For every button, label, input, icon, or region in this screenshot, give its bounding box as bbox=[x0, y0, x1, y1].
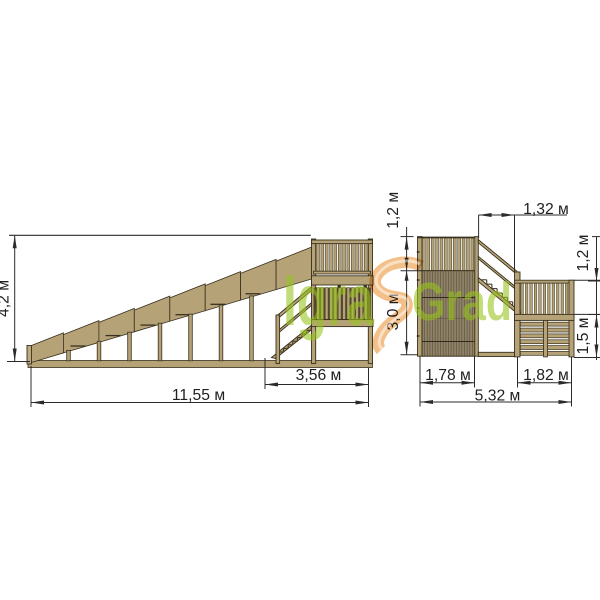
svg-text:Grad: Grad bbox=[412, 272, 512, 332]
svg-text:1,2 м: 1,2 м bbox=[385, 192, 402, 229]
svg-text:1,78 м: 1,78 м bbox=[425, 367, 471, 384]
svg-text:1,5 м: 1,5 м bbox=[575, 318, 592, 355]
svg-text:1,82 м: 1,82 м bbox=[523, 367, 569, 384]
svg-text:1,2 м: 1,2 м bbox=[575, 235, 592, 272]
svg-text:Igra: Igra bbox=[283, 261, 375, 341]
svg-text:11,55 м: 11,55 м bbox=[172, 387, 225, 404]
svg-text:3,56 м: 3,56 м bbox=[296, 367, 342, 384]
svg-text:4,2 м: 4,2 м bbox=[0, 280, 13, 317]
svg-text:5,32 м: 5,32 м bbox=[475, 388, 521, 405]
svg-text:1,32 м: 1,32 м bbox=[523, 201, 569, 218]
